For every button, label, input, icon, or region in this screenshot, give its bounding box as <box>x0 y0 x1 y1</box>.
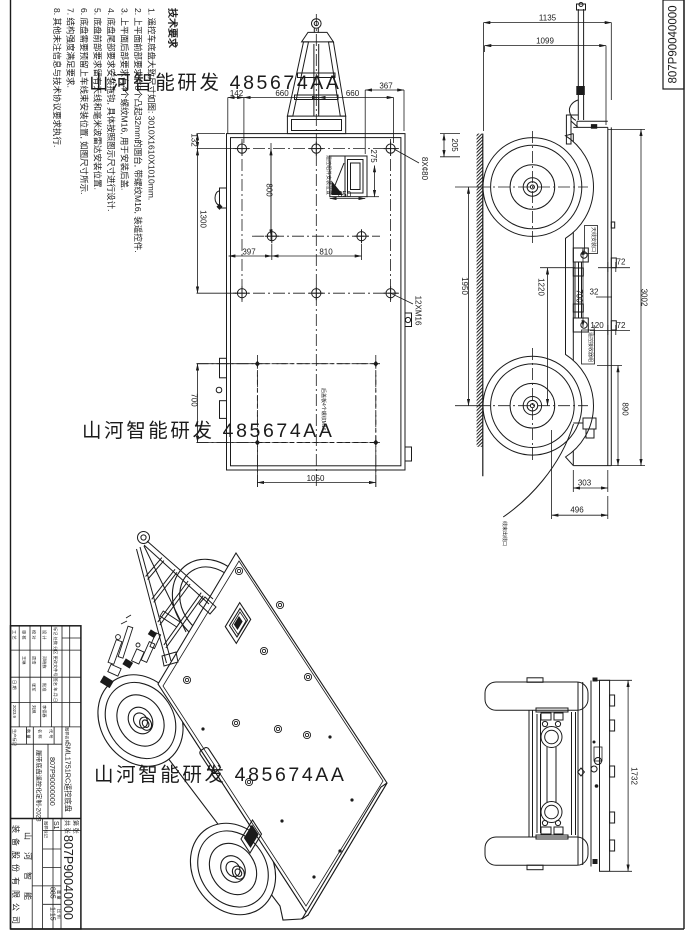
svg-text:技术要求: 技术要求 <box>166 8 179 49</box>
svg-text:120: 120 <box>590 321 604 330</box>
svg-text:1220: 1220 <box>537 278 546 296</box>
svg-text:890: 890 <box>621 402 630 416</box>
svg-text:工 艺: 工 艺 <box>12 630 17 640</box>
svg-text:3. 上平面后部要求有4个螺纹M16, 用于安装后盖.: 3. 上平面后部要求有4个螺纹M16, 用于安装后盖. <box>120 8 130 190</box>
svg-text:遥控组件安装位置: 遥控组件安装位置 <box>325 155 332 195</box>
svg-text:6. 底盘需要预留上车线束安装位置, 如图尺寸所示.: 6. 底盘需要预留上车线束安装位置, 如图尺寸所示. <box>79 8 89 195</box>
svg-text:数 量: 数 量 <box>25 729 32 739</box>
svg-text:设 计: 设 计 <box>41 630 48 640</box>
svg-text:32: 32 <box>590 288 599 297</box>
svg-text:660: 660 <box>346 89 360 98</box>
svg-text:700: 700 <box>190 393 199 407</box>
svg-text:批准: 批准 <box>41 683 48 691</box>
svg-text:校 对: 校 对 <box>31 630 38 640</box>
svg-text:72: 72 <box>617 258 626 267</box>
svg-text:3002: 3002 <box>640 289 649 307</box>
svg-text:刘旭: 刘旭 <box>31 705 38 713</box>
svg-text:7. 结构强度满足要求.: 7. 结构强度满足要求. <box>66 8 76 88</box>
svg-text:700: 700 <box>575 289 584 303</box>
svg-text:367: 367 <box>379 82 393 91</box>
svg-text:邓晓栋: 邓晓栋 <box>41 656 48 669</box>
svg-text:1950: 1950 <box>460 277 469 295</box>
svg-text:代 号: 代 号 <box>48 729 55 739</box>
svg-text:1099: 1099 <box>536 37 554 46</box>
svg-text:1300: 1300 <box>199 210 208 228</box>
svg-text:810: 810 <box>319 248 333 257</box>
svg-text:2. 上平面前部要求有8个凸起32mm的圆台, 带螺纹M16: 2. 上平面前部要求有8个凸起32mm的圆台, 带螺纹M16, 装遥控件. <box>133 8 143 253</box>
svg-text:线束出线口: 线束出线口 <box>501 521 508 546</box>
svg-text:807P90040000: 807P90040000 <box>668 5 680 83</box>
svg-text:张军: 张军 <box>31 683 38 691</box>
svg-text:205: 205 <box>450 138 459 152</box>
svg-text:山河智能研发 485674AA: 山河智能研发 485674AA <box>82 420 335 442</box>
svg-text:12XM16: 12XM16 <box>414 296 423 326</box>
svg-text:275: 275 <box>369 149 378 163</box>
svg-text:5. 底盘前部要求留有天线和毫米波雷达安装位置.: 5. 底盘前部要求留有天线和毫米波雷达安装位置. <box>93 8 103 190</box>
svg-text:图样标记: 图样标记 <box>43 821 50 839</box>
svg-text:1050: 1050 <box>307 474 325 483</box>
svg-text:生产标记: 生产标记 <box>11 729 18 747</box>
svg-text:1. 遥控车底盘大致尺寸如图: 3010X1610X1010: 1. 遥控车底盘大致尺寸如图: 3010X1610X1010mm. <box>147 8 157 200</box>
svg-text:审 核: 审 核 <box>21 630 28 640</box>
svg-text:8X¢80: 8X¢80 <box>420 157 429 181</box>
svg-text:遥控接收器组: 遥控接收器组 <box>587 332 594 362</box>
svg-text:807P90040000: 807P90040000 <box>61 835 75 920</box>
svg-text:山河智能研发 485674AA: 山河智能研发 485674AA <box>89 72 342 94</box>
svg-text:王琳: 王琳 <box>21 656 28 665</box>
svg-text:496: 496 <box>570 506 584 515</box>
svg-text:72: 72 <box>617 321 626 330</box>
svg-text:装备股份有限公司: 装备股份有限公司 <box>11 825 21 929</box>
svg-text:1732: 1732 <box>630 767 639 785</box>
svg-text:第 张: 第 张 <box>72 820 80 834</box>
svg-text:397: 397 <box>242 248 256 257</box>
svg-text:2023.9: 2023.9 <box>12 705 17 718</box>
svg-text:8. 其他未注信息与技术协议要求执行.: 8. 其他未注信息与技术协议要求执行. <box>52 8 62 147</box>
svg-text:周浩: 周浩 <box>31 656 38 664</box>
svg-text:山河智能: 山河智能 <box>23 832 33 912</box>
svg-text:303: 303 <box>578 479 592 488</box>
svg-text:807P90000000: 807P90000000 <box>48 757 57 806</box>
svg-text:李德春: 李德春 <box>41 705 48 718</box>
svg-text:800: 800 <box>265 183 274 197</box>
svg-text:1:15: 1:15 <box>49 907 56 921</box>
svg-text:1135: 1135 <box>539 14 557 23</box>
svg-text:履带底盘遥控化定制-2023: 履带底盘遥控化定制-2023 <box>35 750 43 822</box>
svg-text:350: 350 <box>338 190 352 199</box>
svg-text:4. 底盘尾部要求安装拖钩, 具体按照图示尺寸进行设计.: 4. 底盘尾部要求安装拖钩, 具体按照图示尺寸进行设计. <box>106 8 116 212</box>
svg-text:共 张: 共 张 <box>63 820 71 834</box>
svg-text:132: 132 <box>190 133 199 147</box>
svg-text:885: 885 <box>49 887 56 899</box>
svg-text:标记 处数 分区 更改文件号 签名 年.月.日: 标记 处数 分区 更改文件号 签名 年.月.日 <box>52 627 59 702</box>
svg-text:S1: S1 <box>52 821 59 830</box>
svg-text:天线安装口: 天线安装口 <box>590 227 597 252</box>
svg-text:山河智能研发 485674AA: 山河智能研发 485674AA <box>94 764 347 786</box>
svg-text:名 称: 名 称 <box>37 729 44 739</box>
svg-text:SML1751RC遥控底盘: SML1751RC遥控底盘 <box>64 742 73 812</box>
